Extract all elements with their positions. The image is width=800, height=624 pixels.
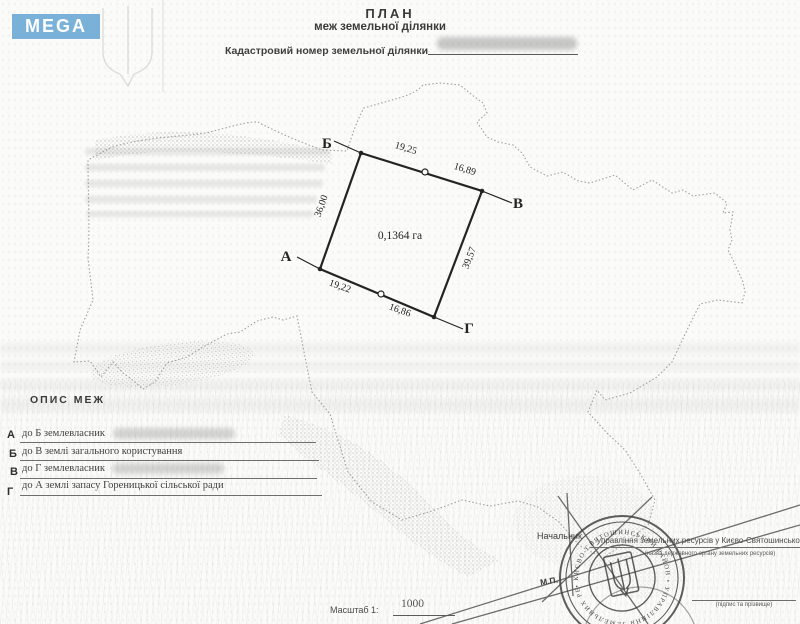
boundary-text: до Б землевласник <box>22 428 105 439</box>
boundary-letter: Г <box>7 486 13 498</box>
corner-label-v: В <box>513 196 523 212</box>
measurement-top-right: 16,89 <box>452 161 477 178</box>
corner-label-b: Б <box>322 136 332 152</box>
boundary-underline <box>20 478 317 479</box>
boundary-text: до А землі запасу Гореницької сільської … <box>22 480 224 491</box>
measurement-bottom-right: 16,86 <box>387 302 412 320</box>
corner-label-g: Г <box>464 321 474 337</box>
trident-sketch <box>103 0 163 92</box>
boundary-text: до В землі загального користування <box>22 446 182 457</box>
redaction-smudge <box>113 428 235 439</box>
measurement-top-left: 19,25 <box>393 140 418 157</box>
boundary-letter: Б <box>9 448 17 460</box>
scanned-land-plan-page: MEGA ПЛАН меж земельної ділянки Кадастро… <box>0 0 800 624</box>
boundaries-heading: ОПИС МЕЖ <box>30 394 105 406</box>
boundary-letter: А <box>7 429 15 441</box>
boundary-underline <box>20 442 316 443</box>
corner-label-a: А <box>281 249 292 265</box>
office-underline <box>590 547 800 548</box>
plan-drawing-canvas: Б В А Г 19,25 16,89 36,00 39,57 19,22 16… <box>0 0 800 624</box>
scale-label: Масштаб 1: <box>330 605 379 615</box>
signature-caption: (підпис та прізвище) <box>690 602 798 608</box>
scale-underline <box>393 615 455 616</box>
measurement-right: 39,57 <box>460 246 478 271</box>
boundary-text: до Г землевласник <box>22 463 105 474</box>
plot-drawing: Б В А Г 19,25 16,89 36,00 39,57 19,22 16… <box>281 136 523 337</box>
official-title: Начальник <box>537 531 582 541</box>
boundary-underline <box>20 460 319 461</box>
office-name-line: управління земельних ресурсів у Києво-Св… <box>597 536 800 545</box>
map-stipple-shading <box>88 132 692 598</box>
redaction-smudge <box>112 463 224 474</box>
office-caption: (назва державного органу земельних ресур… <box>615 551 800 557</box>
signature-line <box>692 600 796 601</box>
measurement-left: 36,00 <box>313 194 331 219</box>
boundary-underline <box>20 495 322 496</box>
area-label: 0,1364 га <box>378 230 422 242</box>
boundary-letter: В <box>10 466 18 478</box>
scale-value: 1000 <box>401 598 424 610</box>
